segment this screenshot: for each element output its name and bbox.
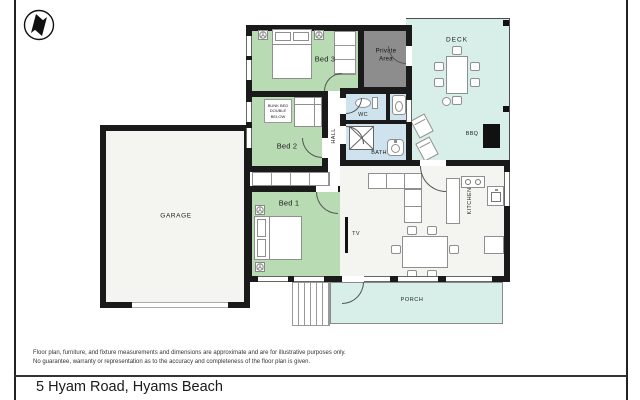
deck-table xyxy=(446,56,468,94)
bed1-double-bed xyxy=(254,216,302,260)
window xyxy=(246,102,252,122)
ceiling-fan-icon xyxy=(255,262,265,272)
sofa xyxy=(404,189,422,223)
window xyxy=(258,276,288,282)
page-border-right xyxy=(626,0,628,400)
bbq-grill xyxy=(483,124,500,148)
dining-chair xyxy=(427,226,437,235)
porch-steps xyxy=(292,282,330,326)
label-bath: BATH xyxy=(371,150,386,156)
window xyxy=(246,128,252,148)
deck-post xyxy=(503,106,509,112)
deck-chair xyxy=(434,78,444,87)
deck-chair xyxy=(470,78,480,87)
label-garage: GARAGE xyxy=(160,213,191,220)
footer-divider xyxy=(15,375,627,377)
door-gap xyxy=(406,46,412,66)
dining-chair xyxy=(449,245,459,254)
vanity-basin-icon xyxy=(392,95,406,115)
ceiling-fan-icon xyxy=(258,30,268,40)
label-bbq: BBQ xyxy=(466,131,479,137)
interior-wall xyxy=(386,94,390,120)
sofa xyxy=(368,173,422,189)
property-address: 5 Hyam Road, Hyams Beach xyxy=(36,379,223,395)
interior-wall xyxy=(346,120,406,124)
dining-chair xyxy=(407,226,417,235)
label-wc: WC xyxy=(358,112,368,118)
tv-screen xyxy=(345,217,348,253)
label-deck: DECK xyxy=(446,37,468,44)
bunk-bed xyxy=(294,97,322,127)
bed3-double-bed xyxy=(272,29,312,79)
kitchen-counter xyxy=(446,178,460,224)
disclaimer-line-2: No guarantee, warranty or representation… xyxy=(33,358,346,367)
ceiling-fan-icon xyxy=(255,205,265,215)
label-tv: TV xyxy=(352,231,360,237)
bunk-note: BUNK BED DOUBLE BELOW xyxy=(264,99,292,123)
door-gap xyxy=(322,138,328,158)
disclaimer-line-1: Floor plan, furniture, and fixture measu… xyxy=(33,349,346,358)
sink-icon xyxy=(487,186,504,206)
dining-table xyxy=(402,236,448,268)
window xyxy=(504,172,510,206)
deck-chair xyxy=(452,96,462,105)
window xyxy=(246,36,252,56)
dining-chair xyxy=(391,245,401,254)
label-kitchen: KITCHEN xyxy=(467,188,473,215)
window xyxy=(246,60,252,80)
basin-icon xyxy=(387,139,404,156)
label-porch: PORCH xyxy=(401,297,424,303)
stove-icon xyxy=(461,176,485,188)
page-border-left xyxy=(14,0,16,400)
wardrobe xyxy=(252,172,330,186)
deck-chair xyxy=(470,62,480,71)
garage-door xyxy=(132,302,228,308)
disclaimer: Floor plan, furniture, and fixture measu… xyxy=(33,349,346,366)
fridge xyxy=(484,236,504,254)
floor-plan-page: DECK BBQ GARAGE Bed 3 Private Area BUNK … xyxy=(0,0,640,400)
wardrobe xyxy=(334,31,356,75)
deck-side-table xyxy=(442,97,451,106)
label-hall: HALL xyxy=(331,128,337,143)
label-bed1: Bed 1 xyxy=(279,199,300,208)
window xyxy=(406,100,412,122)
ceiling-fan-icon xyxy=(314,30,324,40)
deck-chair xyxy=(452,46,462,55)
deck-chair xyxy=(434,62,444,71)
deck-post xyxy=(503,20,509,26)
north-arrow-compass-icon xyxy=(20,6,58,44)
label-bed2: Bed 2 xyxy=(277,142,298,151)
label-bed3: Bed 3 xyxy=(315,55,336,64)
